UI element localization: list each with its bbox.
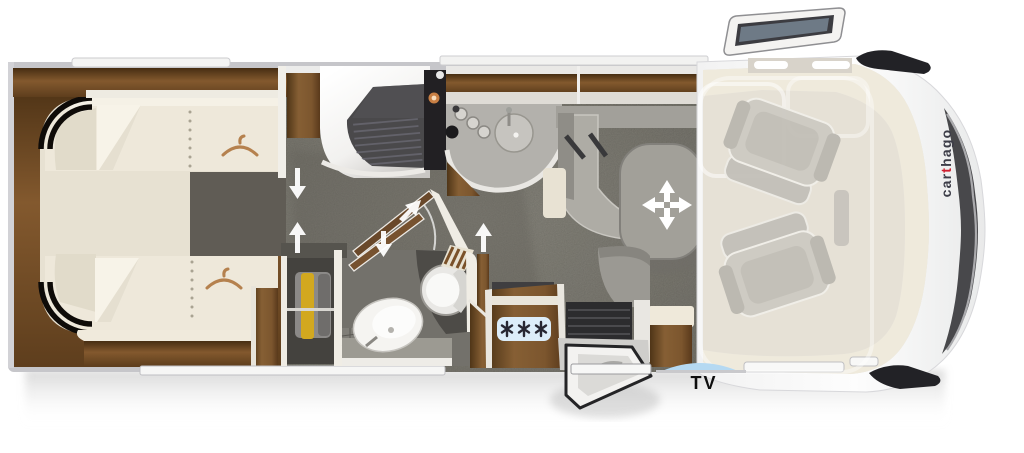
svg-text:TV: TV [690,373,717,393]
svg-text:carthago: carthago [938,129,954,198]
